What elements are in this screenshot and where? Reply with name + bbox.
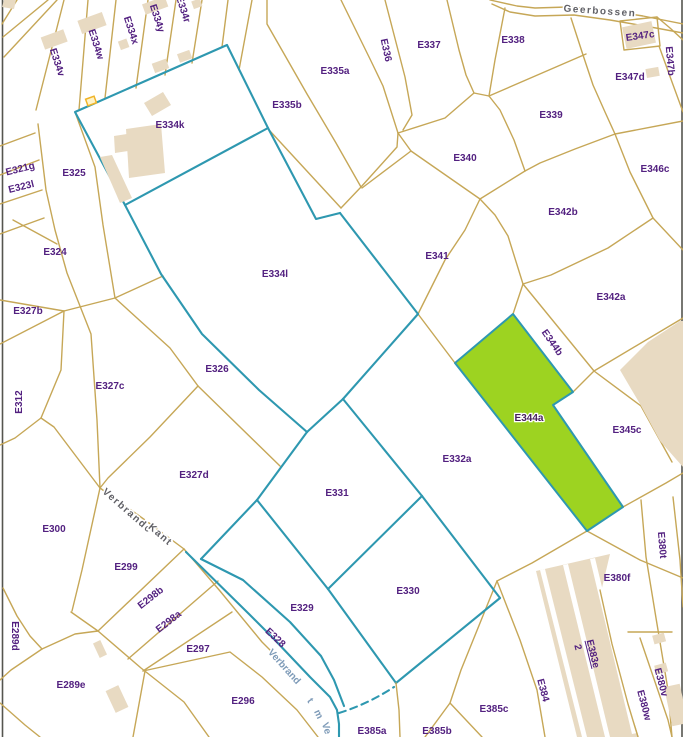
svg-text:E385a: E385a — [358, 726, 387, 737]
svg-text:E332a: E332a — [443, 454, 472, 465]
svg-text:E300: E300 — [42, 524, 66, 535]
svg-text:E342b: E342b — [548, 207, 577, 218]
svg-text:E385c: E385c — [480, 704, 509, 715]
svg-text:E289d: E289d — [9, 621, 20, 650]
svg-text:E330: E330 — [396, 586, 420, 597]
svg-text:E329: E329 — [290, 603, 314, 614]
svg-text:E312: E312 — [14, 390, 25, 414]
svg-text:E327c: E327c — [96, 381, 125, 392]
svg-text:E334k: E334k — [156, 120, 185, 131]
svg-text:E385b: E385b — [422, 726, 451, 737]
svg-text:E297: E297 — [186, 644, 210, 655]
svg-text:E327d: E327d — [179, 470, 208, 481]
svg-text:E340: E340 — [453, 153, 477, 164]
svg-text:E289e: E289e — [57, 680, 86, 691]
svg-text:E337: E337 — [417, 40, 441, 51]
svg-text:E296: E296 — [231, 696, 255, 707]
svg-text:E342a: E342a — [597, 292, 626, 303]
svg-text:E335b: E335b — [272, 100, 301, 111]
svg-text:E380f: E380f — [604, 573, 631, 584]
svg-text:E346c: E346c — [641, 164, 670, 175]
svg-text:E331: E331 — [325, 488, 349, 499]
svg-text:E345c: E345c — [613, 425, 642, 436]
svg-text:E324: E324 — [43, 247, 67, 258]
svg-text:E327b: E327b — [13, 306, 42, 317]
svg-text:E339: E339 — [539, 110, 563, 121]
svg-text:E326: E326 — [205, 364, 229, 375]
svg-text:E325: E325 — [62, 168, 86, 179]
svg-text:E341: E341 — [425, 251, 449, 262]
svg-text:E338: E338 — [501, 35, 525, 46]
svg-text:E334l: E334l — [262, 269, 288, 280]
svg-text:E344a: E344a — [515, 413, 544, 424]
svg-text:E299: E299 — [114, 562, 138, 573]
svg-text:E347d: E347d — [615, 72, 644, 83]
svg-text:E335a: E335a — [321, 66, 350, 77]
